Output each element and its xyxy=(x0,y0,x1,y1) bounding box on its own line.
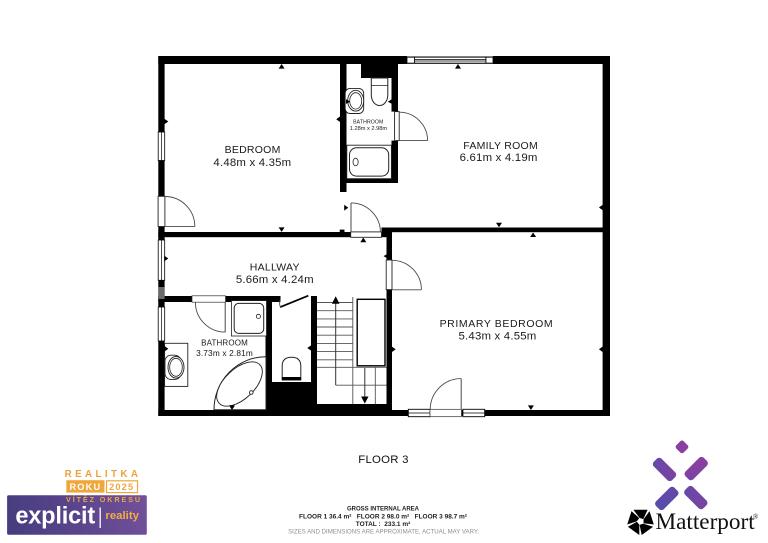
svg-text:Matterport: Matterport xyxy=(656,509,756,535)
svg-text:BATHROOM: BATHROOM xyxy=(353,120,383,126)
svg-text:ROKU: ROKU xyxy=(69,482,101,492)
svg-text:1.28m x 2.98m: 1.28m x 2.98m xyxy=(350,126,388,132)
svg-text:GROSS INTERNAL AREA: GROSS INTERNAL AREA xyxy=(347,507,420,513)
svg-text:3.73m x 2.81m: 3.73m x 2.81m xyxy=(196,348,253,358)
svg-text:SIZES AND DIMENSIONS ARE APPRO: SIZES AND DIMENSIONS ARE APPROXIMATE, AC… xyxy=(288,529,479,536)
svg-text:BEDROOM: BEDROOM xyxy=(225,144,281,156)
svg-text:FLOOR 3: FLOOR 3 xyxy=(358,454,409,466)
svg-text:®: ® xyxy=(753,513,759,521)
svg-text:REALITKA: REALITKA xyxy=(65,469,142,480)
svg-text:PRIMARY BEDROOM: PRIMARY BEDROOM xyxy=(440,318,554,330)
svg-text:5.66m x 4.24m: 5.66m x 4.24m xyxy=(236,274,314,286)
svg-text:HALLWAY: HALLWAY xyxy=(250,261,300,273)
svg-text:FAMILY ROOM: FAMILY ROOM xyxy=(463,140,538,152)
svg-text:6.61m x 4.19m: 6.61m x 4.19m xyxy=(460,152,538,164)
svg-text:2025: 2025 xyxy=(109,482,134,492)
svg-text:explicit: explicit xyxy=(15,504,95,530)
svg-text:BATHROOM: BATHROOM xyxy=(201,339,248,348)
svg-text:4.48m x 4.35m: 4.48m x 4.35m xyxy=(213,157,291,169)
svg-text:reality: reality xyxy=(105,510,139,522)
svg-text:TOTAL : 233.1 m²: TOTAL : 233.1 m² xyxy=(356,521,411,528)
svg-text:FLOOR 1 36.4 m² FLOOR 2 98.0: FLOOR 1 36.4 m² FLOOR 2 98.0 m² FLOOR 3 … xyxy=(299,513,468,520)
svg-text:5.43m x 4.55m: 5.43m x 4.55m xyxy=(459,331,537,343)
